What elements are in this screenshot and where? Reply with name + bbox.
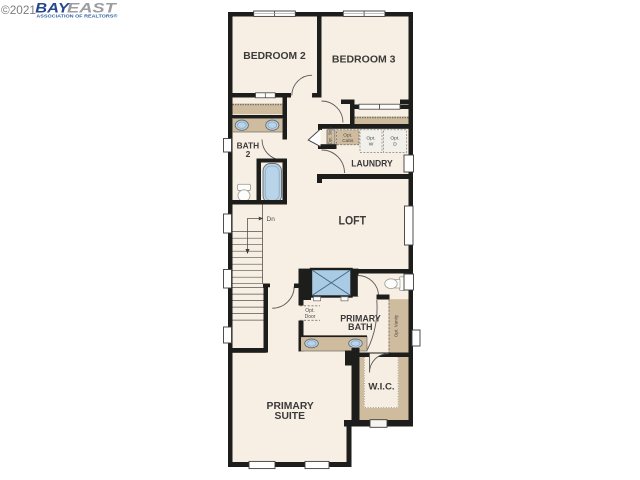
- svg-text:BATH: BATH: [348, 322, 373, 333]
- svg-text:BEDROOM 2: BEDROOM 2: [243, 51, 306, 62]
- svg-text:SUITE: SUITE: [275, 411, 306, 422]
- svg-text:ASSOCIATION OF REALTORS®: ASSOCIATION OF REALTORS®: [36, 14, 118, 19]
- svg-text:Opt.: Opt.: [343, 132, 352, 138]
- svg-text:W.I.C.: W.I.C.: [368, 382, 394, 392]
- svg-text:Opt.: Opt.: [390, 135, 399, 141]
- svg-text:Opt. Sink: Opt. Sink: [328, 126, 333, 144]
- svg-text:Opt. Vanity: Opt. Vanity: [394, 314, 399, 337]
- svg-text:Door: Door: [305, 314, 316, 320]
- svg-text:BEDROOM 3: BEDROOM 3: [332, 55, 396, 66]
- svg-text:Dn: Dn: [267, 216, 276, 223]
- svg-text:LAUNDRY: LAUNDRY: [351, 159, 393, 169]
- svg-text:©2021: ©2021: [1, 3, 36, 17]
- svg-text:W: W: [369, 141, 374, 147]
- svg-text:D: D: [393, 141, 397, 147]
- svg-text:LOFT: LOFT: [339, 214, 367, 228]
- svg-text:Opt.: Opt.: [366, 135, 375, 141]
- svg-text:Cabs: Cabs: [342, 138, 354, 144]
- svg-text:2: 2: [246, 149, 251, 159]
